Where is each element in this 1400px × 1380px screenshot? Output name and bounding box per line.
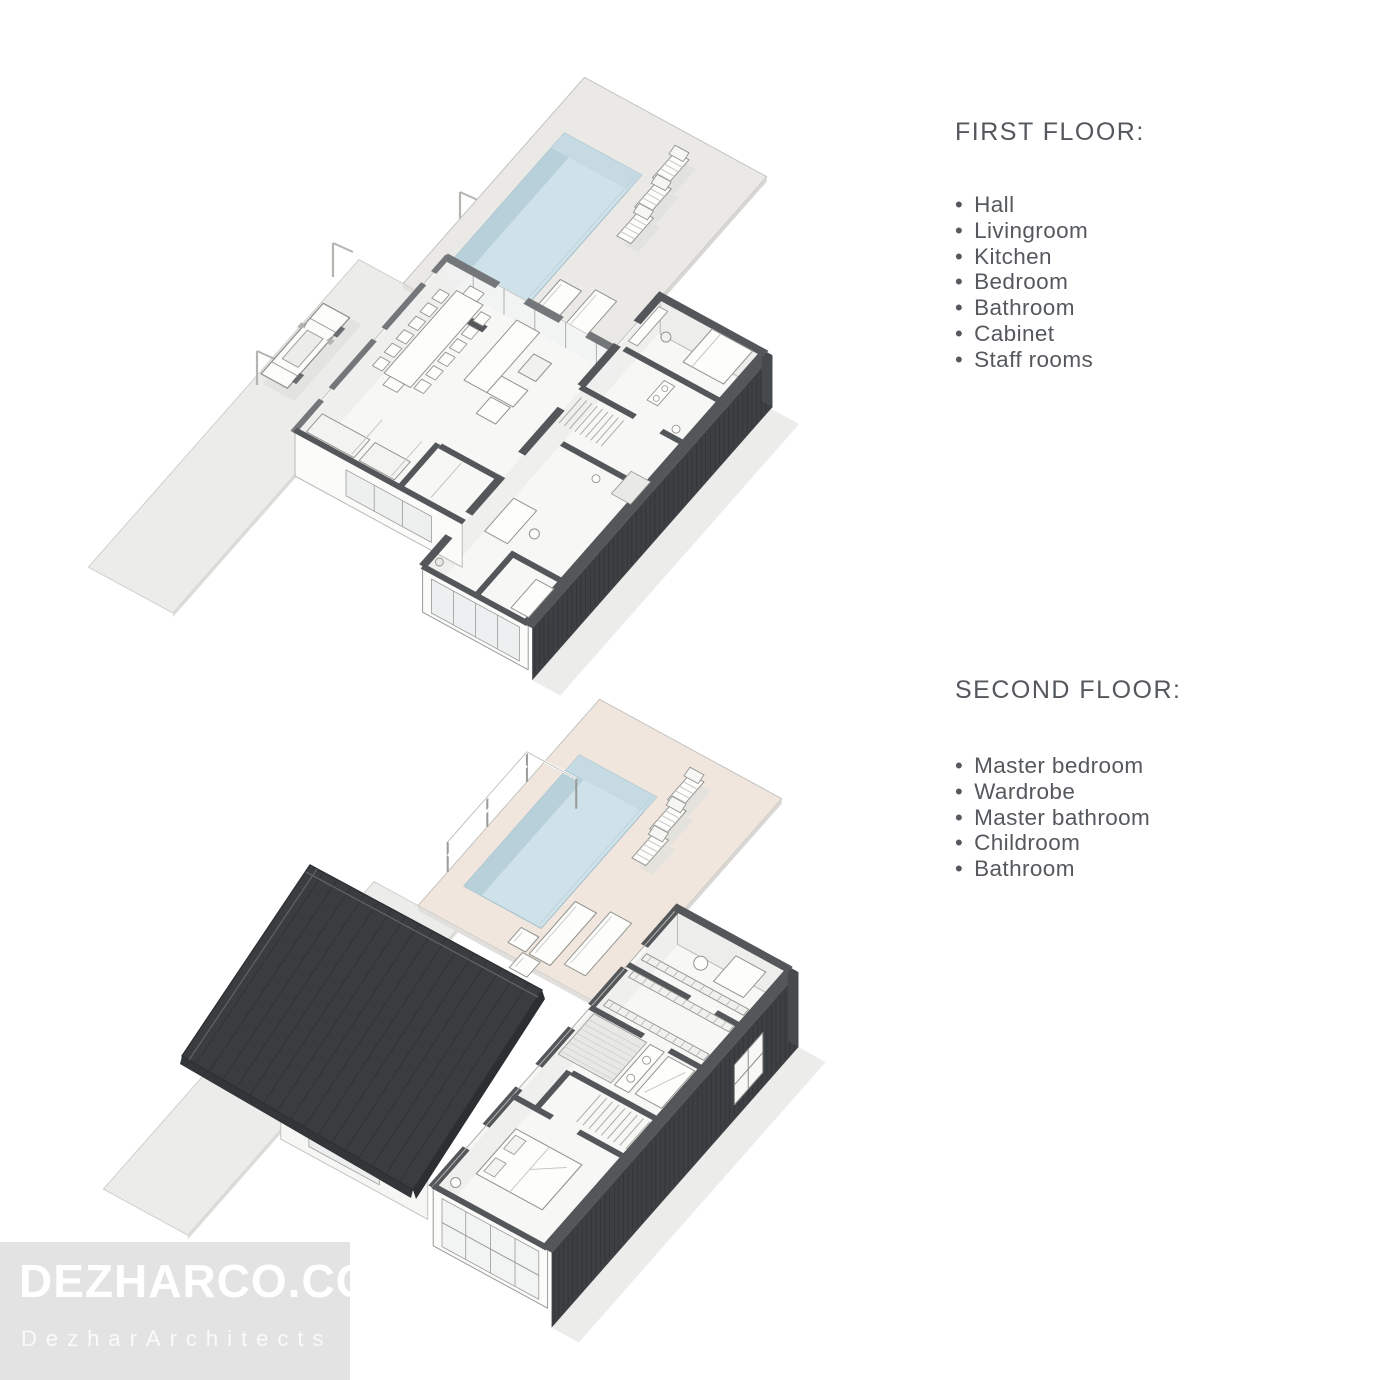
room-list-item: Master bedroom [955, 753, 1285, 779]
floor-section-second: SECOND FLOOR: Master bedroom Wardrobe Ma… [955, 676, 1285, 882]
room-list-item: Master bathroom [955, 805, 1285, 831]
watermark-block: DEZHARCO.COM DezharArchitects [0, 1242, 350, 1380]
room-list-item: Bedroom [955, 269, 1285, 295]
room-list-item: Childroom [955, 830, 1285, 856]
room-list-item: Cabinet [955, 321, 1285, 347]
section-title: SECOND FLOOR: [955, 676, 1285, 705]
watermark-studio: DezharArchitects [21, 1326, 333, 1352]
watermark-site: DEZHARCO.COM [19, 1254, 412, 1308]
room-list-item: Hall [955, 192, 1285, 218]
floor-section-first: FIRST FLOOR: Hall Livingroom Kitchen Bed… [955, 118, 1285, 373]
room-list-item: Kitchen [955, 244, 1285, 270]
room-list-item: Livingroom [955, 218, 1285, 244]
section-title: FIRST FLOOR: [955, 118, 1285, 147]
room-list-item: Staff rooms [955, 347, 1285, 373]
first-floor-illustration [88, 77, 799, 695]
room-list-item: Bathroom [955, 295, 1285, 321]
architectural-sheet: FIRST FLOOR: Hall Livingroom Kitchen Bed… [0, 0, 1400, 1380]
room-list-item: Wardrobe [955, 779, 1285, 805]
room-list: Master bedroom Wardrobe Master bathroom … [955, 753, 1285, 882]
room-list: Hall Livingroom Kitchen Bedroom Bathroom… [955, 192, 1285, 373]
room-list-item: Bathroom [955, 856, 1285, 882]
